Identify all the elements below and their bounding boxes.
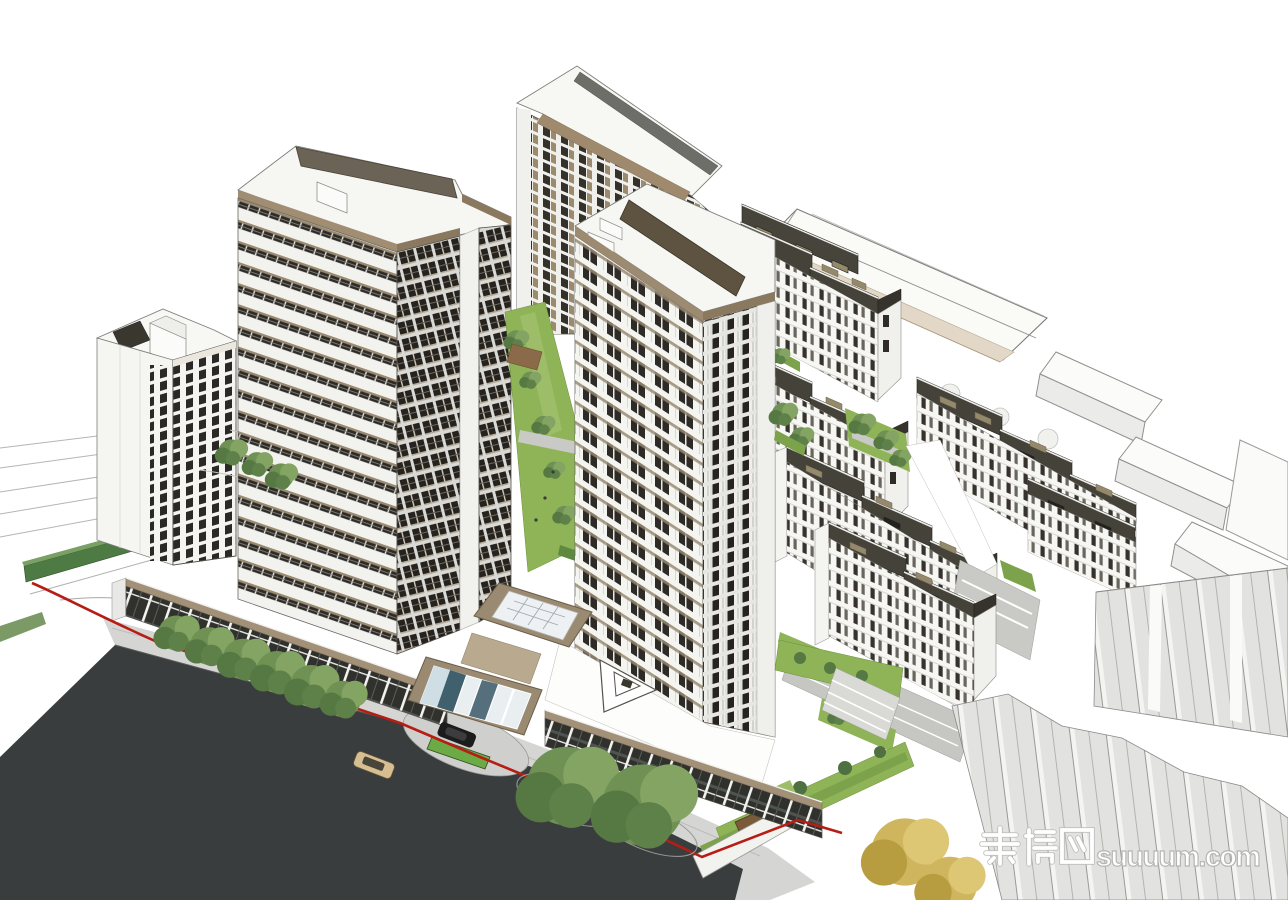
svg-text:suuuum.com: suuuum.com (1096, 841, 1259, 873)
